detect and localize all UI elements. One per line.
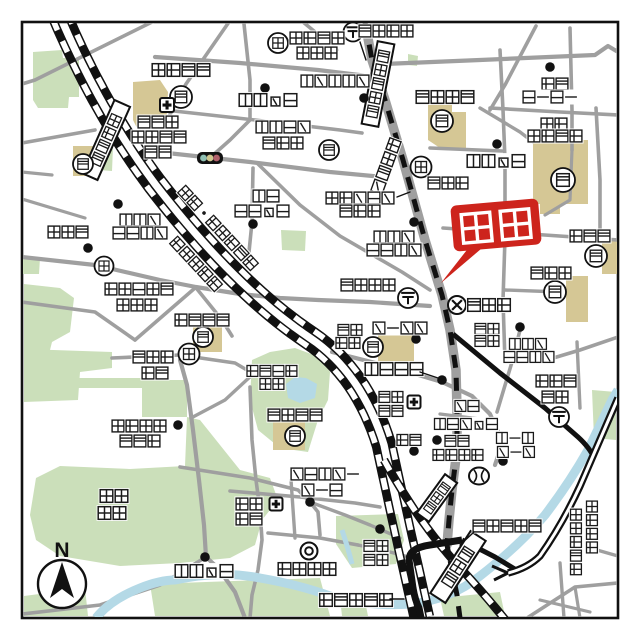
svg-text:N: N: [54, 539, 69, 562]
